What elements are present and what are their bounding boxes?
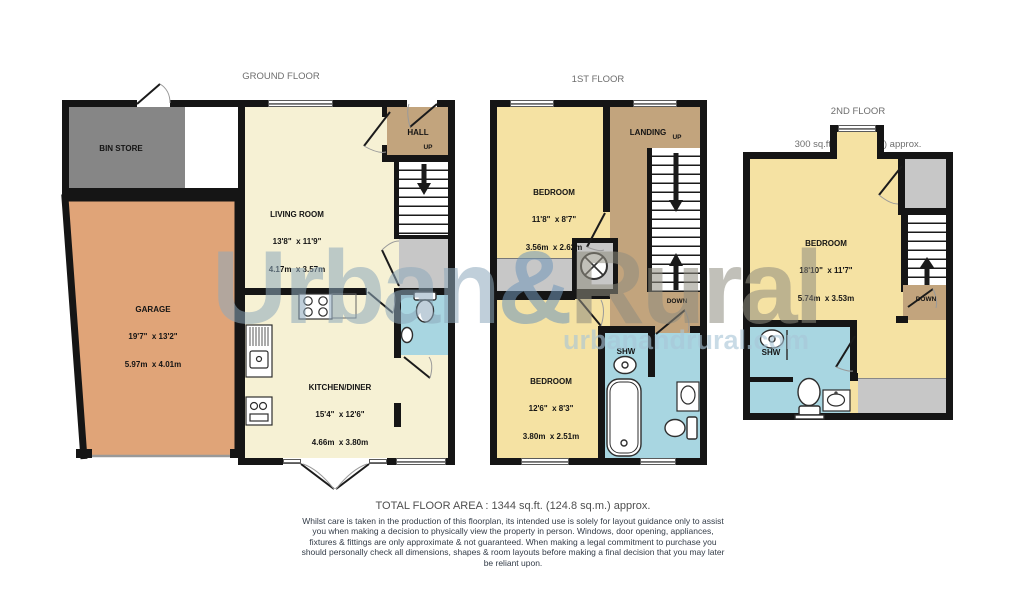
garage-dims-m: 5.97m x 4.01m — [125, 360, 181, 369]
kitchen-dims-ft: 15'4" x 12'6" — [309, 410, 372, 419]
gf-toilet-icon — [414, 292, 436, 322]
ff-stairs-arrows — [669, 153, 683, 290]
bedroom1-dims-m: 3.56m x 2.62m — [526, 243, 582, 252]
gf-basin-icon — [402, 328, 413, 343]
landing-label: LANDING — [630, 128, 666, 137]
door-arcs-first — [587, 195, 937, 371]
sf-bedroom-label: BEDROOM 18'10" x 11'7" 5.74m x 3.53m — [798, 220, 854, 322]
living-room-dims-m: 4.17m x 3.57m — [269, 265, 325, 274]
sf-shw-label: SHW — [762, 348, 781, 357]
sf-bedroom-dims-ft: 18'10" x 11'7" — [798, 266, 854, 275]
sf-shower-tray-icon — [761, 330, 784, 348]
sf-toilet-icon — [795, 379, 824, 420]
gf-stairs-arrow — [417, 164, 431, 195]
sf-bedroom-dims-m: 5.74m x 3.53m — [798, 294, 854, 303]
kitchen-label: KITCHEN/DINER 15'4" x 12'6" 4.66m x 3.80… — [309, 364, 372, 466]
ff-shw-label: SHW — [617, 347, 636, 356]
sf-down-label: DOWN — [916, 296, 937, 304]
ff-shower-tray-icon — [614, 357, 636, 374]
living-room-label: LIVING ROOM 13'8" x 11'9" 4.17m x 3.57m — [269, 191, 325, 293]
ff-toilet-icon — [665, 417, 697, 439]
garage-label: GARAGE 19'7" x 13'2" 5.97m x 4.01m — [125, 286, 181, 388]
living-room-dims-ft: 13'8" x 11'9" — [269, 237, 325, 246]
bedroom1-label: BEDROOM 11'8" x 8'7" 3.56m x 2.62m — [526, 169, 582, 271]
garage-dims-ft: 19'7" x 13'2" — [125, 332, 181, 341]
garage-name: GARAGE — [125, 305, 181, 314]
oven-icon — [246, 397, 272, 425]
bedroom2-dims-m: 3.80m x 2.51m — [523, 432, 579, 441]
hall-up-label: UP — [423, 144, 432, 152]
bedroom2-dims-ft: 12'6" x 8'3" — [523, 404, 579, 413]
bedroom2-name: BEDROOM — [523, 377, 579, 386]
sf-bedroom-name: BEDROOM — [798, 239, 854, 248]
kitchen-name: KITCHEN/DINER — [309, 383, 372, 392]
living-room-name: LIVING ROOM — [269, 210, 325, 219]
ff-sink-icon — [677, 382, 699, 411]
landing-up-label: UP — [672, 134, 681, 142]
sf-stairs-arrow — [919, 257, 935, 285]
bin-store-label: BIN STORE — [99, 144, 142, 153]
floorplan-canvas: GROUND FLOOR 643 sq.ft. (59.8 sq.m.) app… — [0, 0, 1020, 601]
door-leaves-first — [577, 166, 933, 367]
landing-down-label: DOWN — [667, 298, 688, 306]
airing-cupboard-icon — [581, 253, 607, 279]
kitchen-sink-icon — [246, 325, 272, 377]
hob-icon — [299, 294, 356, 319]
bedroom2-label: BEDROOM 12'6" x 8'3" 3.80m x 2.51m — [523, 358, 579, 460]
kitchen-dims-m: 4.66m x 3.80m — [309, 438, 372, 447]
bath-icon — [607, 379, 641, 456]
hall-label: HALL — [407, 128, 428, 137]
bedroom1-name: BEDROOM — [526, 188, 582, 197]
total-floor-area: TOTAL FLOOR AREA : 1344 sq.ft. (124.8 sq… — [376, 500, 651, 512]
sf-sink-icon — [823, 390, 850, 411]
bedroom1-dims-ft: 11'8" x 8'7" — [526, 215, 582, 224]
disclaimer-text: Whilst care is taken in the production o… — [299, 516, 727, 568]
